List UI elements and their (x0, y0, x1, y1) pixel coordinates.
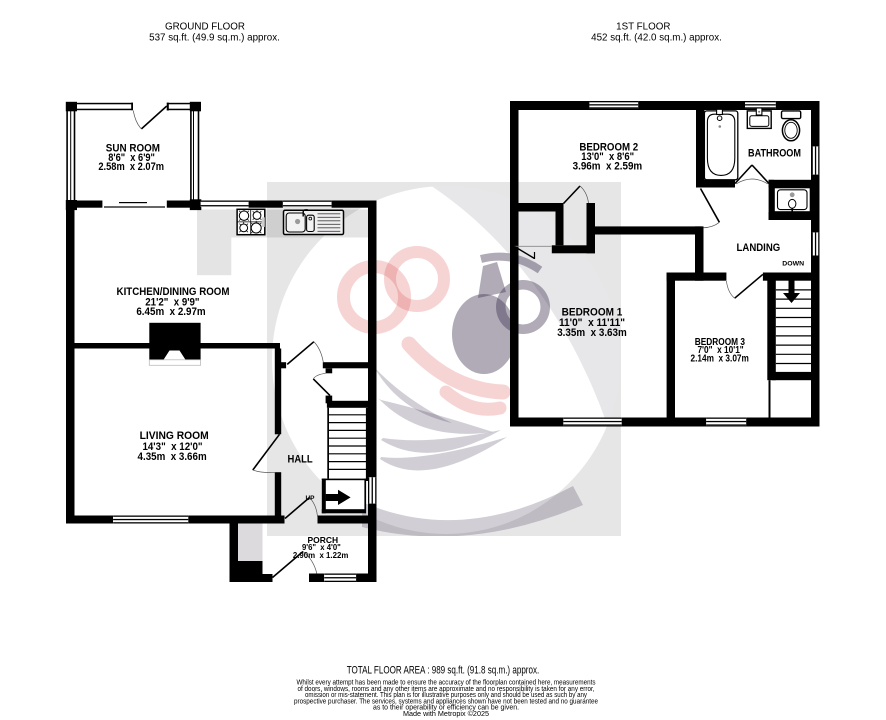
svg-text:2.14m x 3.07m: 2.14m x 3.07m (691, 353, 749, 364)
svg-text:4.35m x 3.66m: 4.35m x 3.66m (138, 451, 207, 463)
svg-text:UP: UP (305, 495, 315, 502)
svg-text:452 sq.ft. (42.0 sq.m.) approx: 452 sq.ft. (42.0 sq.m.) approx. (591, 33, 722, 44)
svg-text:2.90m x 1.22m: 2.90m x 1.22m (293, 550, 349, 560)
svg-text:3.35m x 3.63m: 3.35m x 3.63m (557, 327, 627, 339)
svg-text:TOTAL FLOOR AREA : 989 sq.ft.: TOTAL FLOOR AREA : 989 sq.ft. (91.8 sq.m… (347, 665, 540, 677)
svg-text:6.45m x 2.97m: 6.45m x 2.97m (136, 306, 205, 318)
svg-text:LANDING: LANDING (737, 242, 781, 254)
svg-text:537 sq.ft. (49.9 sq.m.) approx: 537 sq.ft. (49.9 sq.m.) approx. (149, 33, 280, 44)
svg-text:1ST FLOOR: 1ST FLOOR (616, 21, 670, 32)
svg-text:2.58m x 2.07m: 2.58m x 2.07m (98, 161, 164, 173)
svg-text:GROUND FLOOR: GROUND FLOOR (165, 21, 245, 32)
svg-text:HALL: HALL (288, 453, 313, 465)
svg-text:DOWN: DOWN (782, 261, 804, 268)
svg-text:3.96m x 2.59m: 3.96m x 2.59m (573, 160, 643, 172)
svg-text:Made with Metropix ©2025: Made with Metropix ©2025 (403, 710, 489, 718)
svg-text:BATHROOM: BATHROOM (748, 148, 801, 160)
